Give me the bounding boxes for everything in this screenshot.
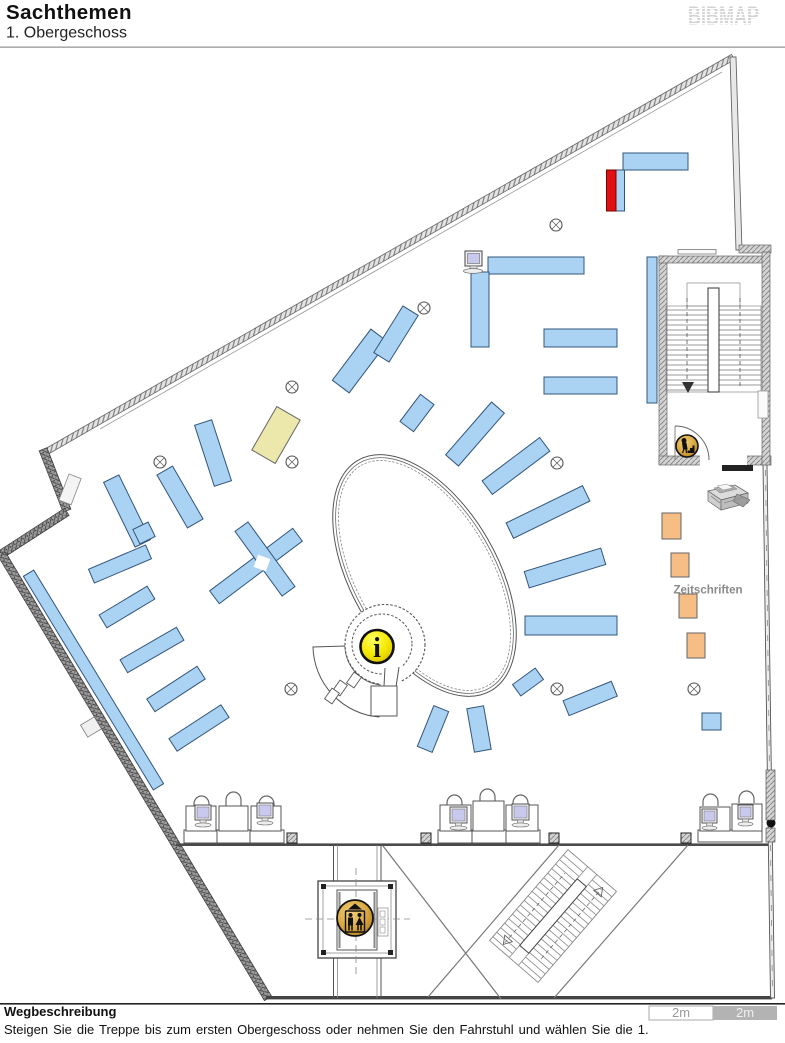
svg-text:BIBMAP: BIBMAP — [688, 1, 759, 31]
svg-text:Sachthemen: Sachthemen — [6, 1, 132, 24]
svg-text:1. Obergeschoss: 1. Obergeschoss — [6, 25, 127, 42]
svg-text:2m: 2m — [736, 1005, 754, 1020]
svg-text:Steigen Sie die Treppe bis zum: Steigen Sie die Treppe bis zum ersten Ob… — [4, 1022, 649, 1037]
svg-text:i: i — [373, 633, 381, 664]
svg-text:2m: 2m — [672, 1005, 690, 1020]
svg-text:Wegbeschreibung: Wegbeschreibung — [4, 1004, 117, 1019]
svg-text:Zeitschriften: Zeitschriften — [673, 585, 742, 597]
